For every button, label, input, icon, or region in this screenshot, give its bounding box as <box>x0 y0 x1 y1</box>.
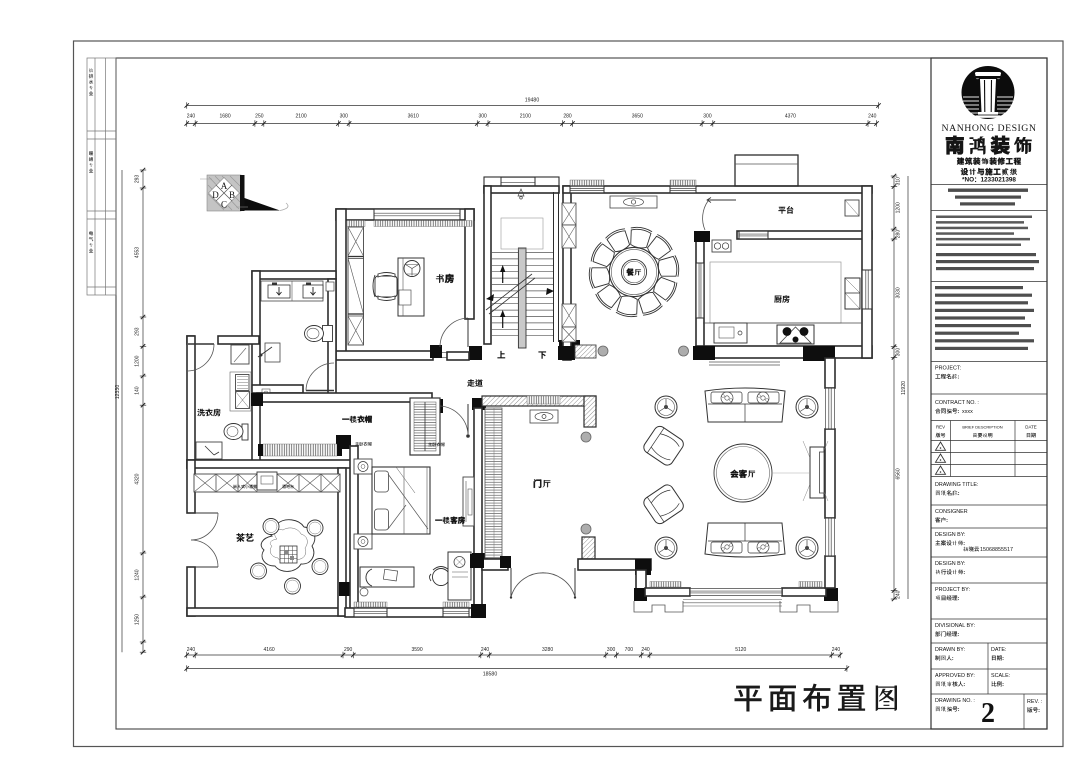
svg-text:3030: 3030 <box>896 287 902 298</box>
svg-text:240: 240 <box>868 114 877 120</box>
svg-text:REV: REV <box>936 425 945 430</box>
svg-text:1250: 1250 <box>135 614 141 625</box>
svg-text:A: A <box>221 181 228 191</box>
svg-text:1200: 1200 <box>135 355 141 366</box>
svg-text:PROJECT BY:: PROJECT BY: <box>935 587 970 593</box>
svg-text:DATE:: DATE: <box>991 647 1006 653</box>
svg-text:2: 2 <box>981 698 995 729</box>
svg-text:15068855517: 15068855517 <box>980 547 1013 553</box>
svg-text:DRAWN BY:: DRAWN BY: <box>935 647 965 653</box>
svg-text:3590: 3590 <box>411 647 422 653</box>
svg-text:300: 300 <box>703 114 712 120</box>
svg-text:140: 140 <box>135 386 141 395</box>
svg-text:APPROVED BY:: APPROVED BY: <box>935 673 975 679</box>
svg-text:290: 290 <box>344 647 353 653</box>
svg-text:700: 700 <box>625 647 634 653</box>
svg-text:240: 240 <box>187 114 196 120</box>
svg-text:D: D <box>212 190 219 200</box>
svg-text:*NO：1233021398: *NO：1233021398 <box>962 177 1016 184</box>
svg-text:4553: 4553 <box>135 247 141 258</box>
svg-text:2100: 2100 <box>520 114 531 120</box>
svg-text:DATE: DATE <box>1025 425 1036 430</box>
svg-text:280: 280 <box>563 114 572 120</box>
svg-text:1200: 1200 <box>896 202 902 213</box>
svg-text:300: 300 <box>607 647 616 653</box>
svg-text:11920: 11920 <box>901 381 907 395</box>
svg-text:CONSIGNER: CONSIGNER <box>935 509 968 515</box>
svg-text:293: 293 <box>135 327 141 336</box>
svg-text:19480: 19480 <box>525 98 540 104</box>
svg-text:SCALE:: SCALE: <box>991 673 1010 679</box>
svg-text:12330: 12330 <box>115 385 121 400</box>
svg-text:DIVISIONAL BY:: DIVISIONAL BY: <box>935 623 975 629</box>
svg-text:280: 280 <box>896 230 902 239</box>
svg-text:NANHONG DESIGN: NANHONG DESIGN <box>942 123 1037 134</box>
svg-text:DRAWING TITLE:: DRAWING TITLE: <box>935 482 978 488</box>
svg-text:240: 240 <box>832 647 841 653</box>
svg-text:3610: 3610 <box>408 114 419 120</box>
svg-text:18580: 18580 <box>483 672 498 678</box>
svg-text:REV. :: REV. : <box>1027 699 1042 705</box>
svg-text:240: 240 <box>481 647 490 653</box>
svg-text:4370: 4370 <box>785 114 796 120</box>
svg-text:DRAWING NO. :: DRAWING NO. : <box>935 698 975 704</box>
svg-text:240: 240 <box>187 647 196 653</box>
svg-text:310: 310 <box>896 177 902 186</box>
svg-text:2100: 2100 <box>296 114 307 120</box>
svg-text:300: 300 <box>340 114 349 120</box>
svg-text:300: 300 <box>896 348 902 357</box>
svg-text:1680: 1680 <box>219 114 230 120</box>
svg-text:C: C <box>221 200 227 210</box>
svg-text:3650: 3650 <box>632 114 643 120</box>
svg-text:PROJECT:: PROJECT: <box>935 366 961 372</box>
svg-text:4320: 4320 <box>135 473 141 484</box>
svg-text:BRIEF DESCRIPTION: BRIEF DESCRIPTION <box>962 425 1002 430</box>
svg-text:xxxx: xxxx <box>962 409 973 415</box>
svg-text:250: 250 <box>255 114 264 120</box>
svg-text:B: B <box>229 190 235 200</box>
svg-text:300: 300 <box>478 114 487 120</box>
svg-text:6560: 6560 <box>896 468 902 479</box>
svg-text:DESIGN BY:: DESIGN BY: <box>935 561 966 567</box>
svg-text:5120: 5120 <box>735 647 746 653</box>
svg-text:1240: 1240 <box>135 569 141 580</box>
svg-text:240: 240 <box>896 590 902 599</box>
svg-text:CONTRACT NO. :: CONTRACT NO. : <box>935 400 979 406</box>
svg-text:293: 293 <box>135 175 141 184</box>
svg-text:DESIGN BY:: DESIGN BY: <box>935 532 966 538</box>
svg-text:240: 240 <box>641 647 650 653</box>
svg-text:4160: 4160 <box>264 647 275 653</box>
svg-text:3280: 3280 <box>542 647 553 653</box>
